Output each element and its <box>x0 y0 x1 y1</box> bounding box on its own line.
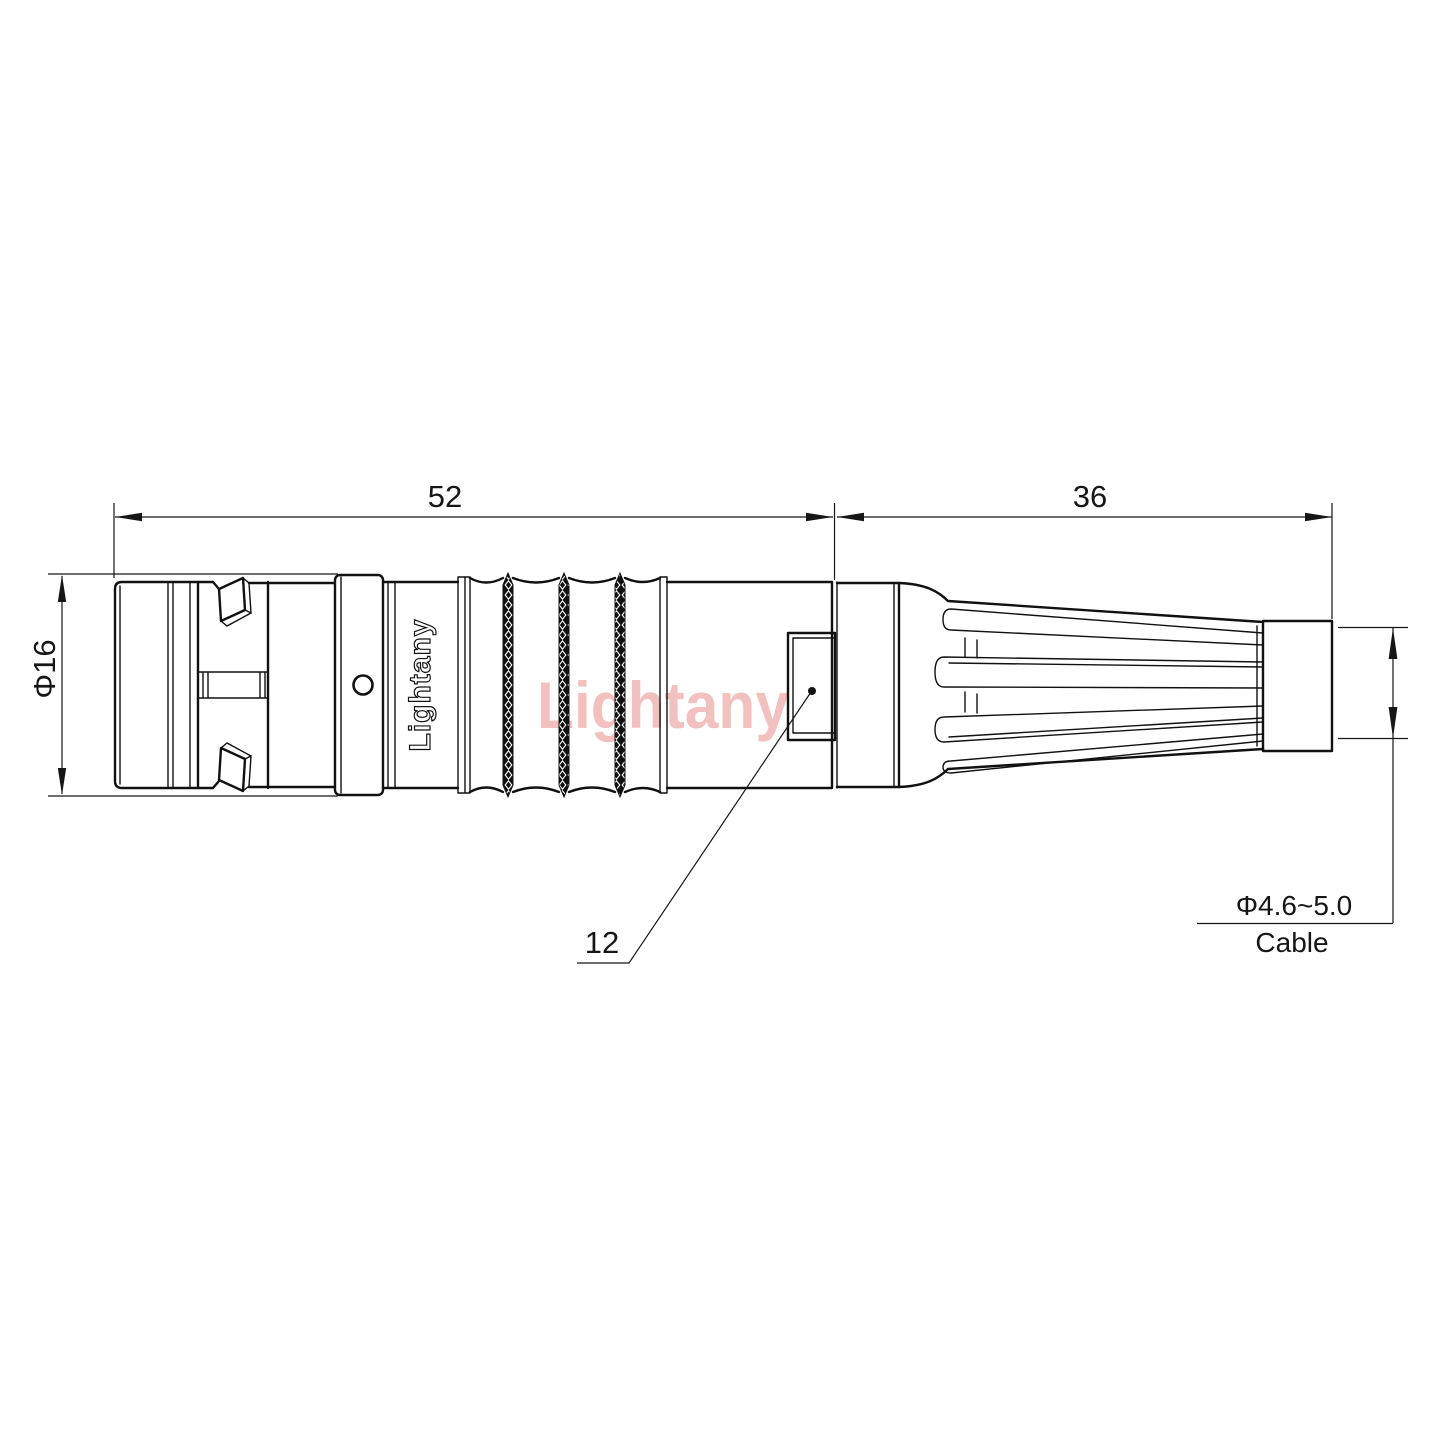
cable-end-cap <box>1257 621 1332 751</box>
dim-36-lines <box>837 503 1332 619</box>
collar-hole <box>354 676 373 695</box>
knurl-band-2 <box>559 573 569 797</box>
back-nut <box>837 583 899 787</box>
cable-dim-arrow-bottom <box>1389 707 1398 738</box>
body-brand-text: Lightany <box>404 619 437 752</box>
cable-dim-arrow-top <box>1389 628 1398 659</box>
dimension-front-diameter: Φ16 <box>27 574 338 796</box>
boot-fin-lines <box>935 609 1263 773</box>
dim-16-lines <box>48 574 338 796</box>
boot-outline <box>899 583 1263 787</box>
watermark-text: Lightany <box>537 668 789 742</box>
dim-36-arrow-left <box>837 513 864 521</box>
knurl-band-3 <box>615 573 625 797</box>
bottom-latch-tab <box>219 748 245 791</box>
key-window-inner <box>793 638 835 733</box>
latch-block-outline <box>198 582 335 788</box>
collar-ring <box>335 575 383 795</box>
knurl-band-1 <box>503 573 513 797</box>
dim-52-lines <box>114 503 835 580</box>
dim-16-label: Φ16 <box>27 639 62 698</box>
strain-relief-boot <box>899 583 1263 787</box>
mid-body: Lightany <box>383 582 458 788</box>
front-barrel-lines <box>120 582 190 788</box>
latch-slot-lines <box>198 672 268 698</box>
key-window <box>788 633 835 740</box>
technical-drawing-page: Lightany Lightany <box>0 0 1440 1440</box>
dim-16-arrow-bottom <box>58 768 66 795</box>
latch-section <box>198 578 335 791</box>
top-latch-tab <box>219 578 245 621</box>
dim-12-label: 12 <box>585 925 619 960</box>
collar-ring-body <box>335 575 383 795</box>
dim-52-label: 52 <box>428 479 462 514</box>
dim-52-arrow-left <box>115 513 142 521</box>
mid-body-lines <box>388 582 395 788</box>
dim-52-arrow-right <box>806 513 833 521</box>
connector-technical-drawing: Lightany Lightany <box>0 0 1440 1440</box>
end-cap <box>1263 621 1332 751</box>
cable-dim-lines <box>1197 628 1408 924</box>
dim-16-arrow-top <box>58 575 66 602</box>
dim-36-arrow-right <box>1305 513 1332 521</box>
dimension-front-length: 52 <box>114 479 835 580</box>
back-nut-edges <box>837 583 899 787</box>
dimension-rear-length: 36 <box>837 479 1332 619</box>
cable-diameter-label: Φ4.6~5.0 <box>1236 890 1353 921</box>
dimension-cable-diameter: Φ4.6~5.0 Cable <box>1197 628 1408 959</box>
cable-label: Cable <box>1255 927 1328 958</box>
dim-36-label: 36 <box>1073 479 1107 514</box>
